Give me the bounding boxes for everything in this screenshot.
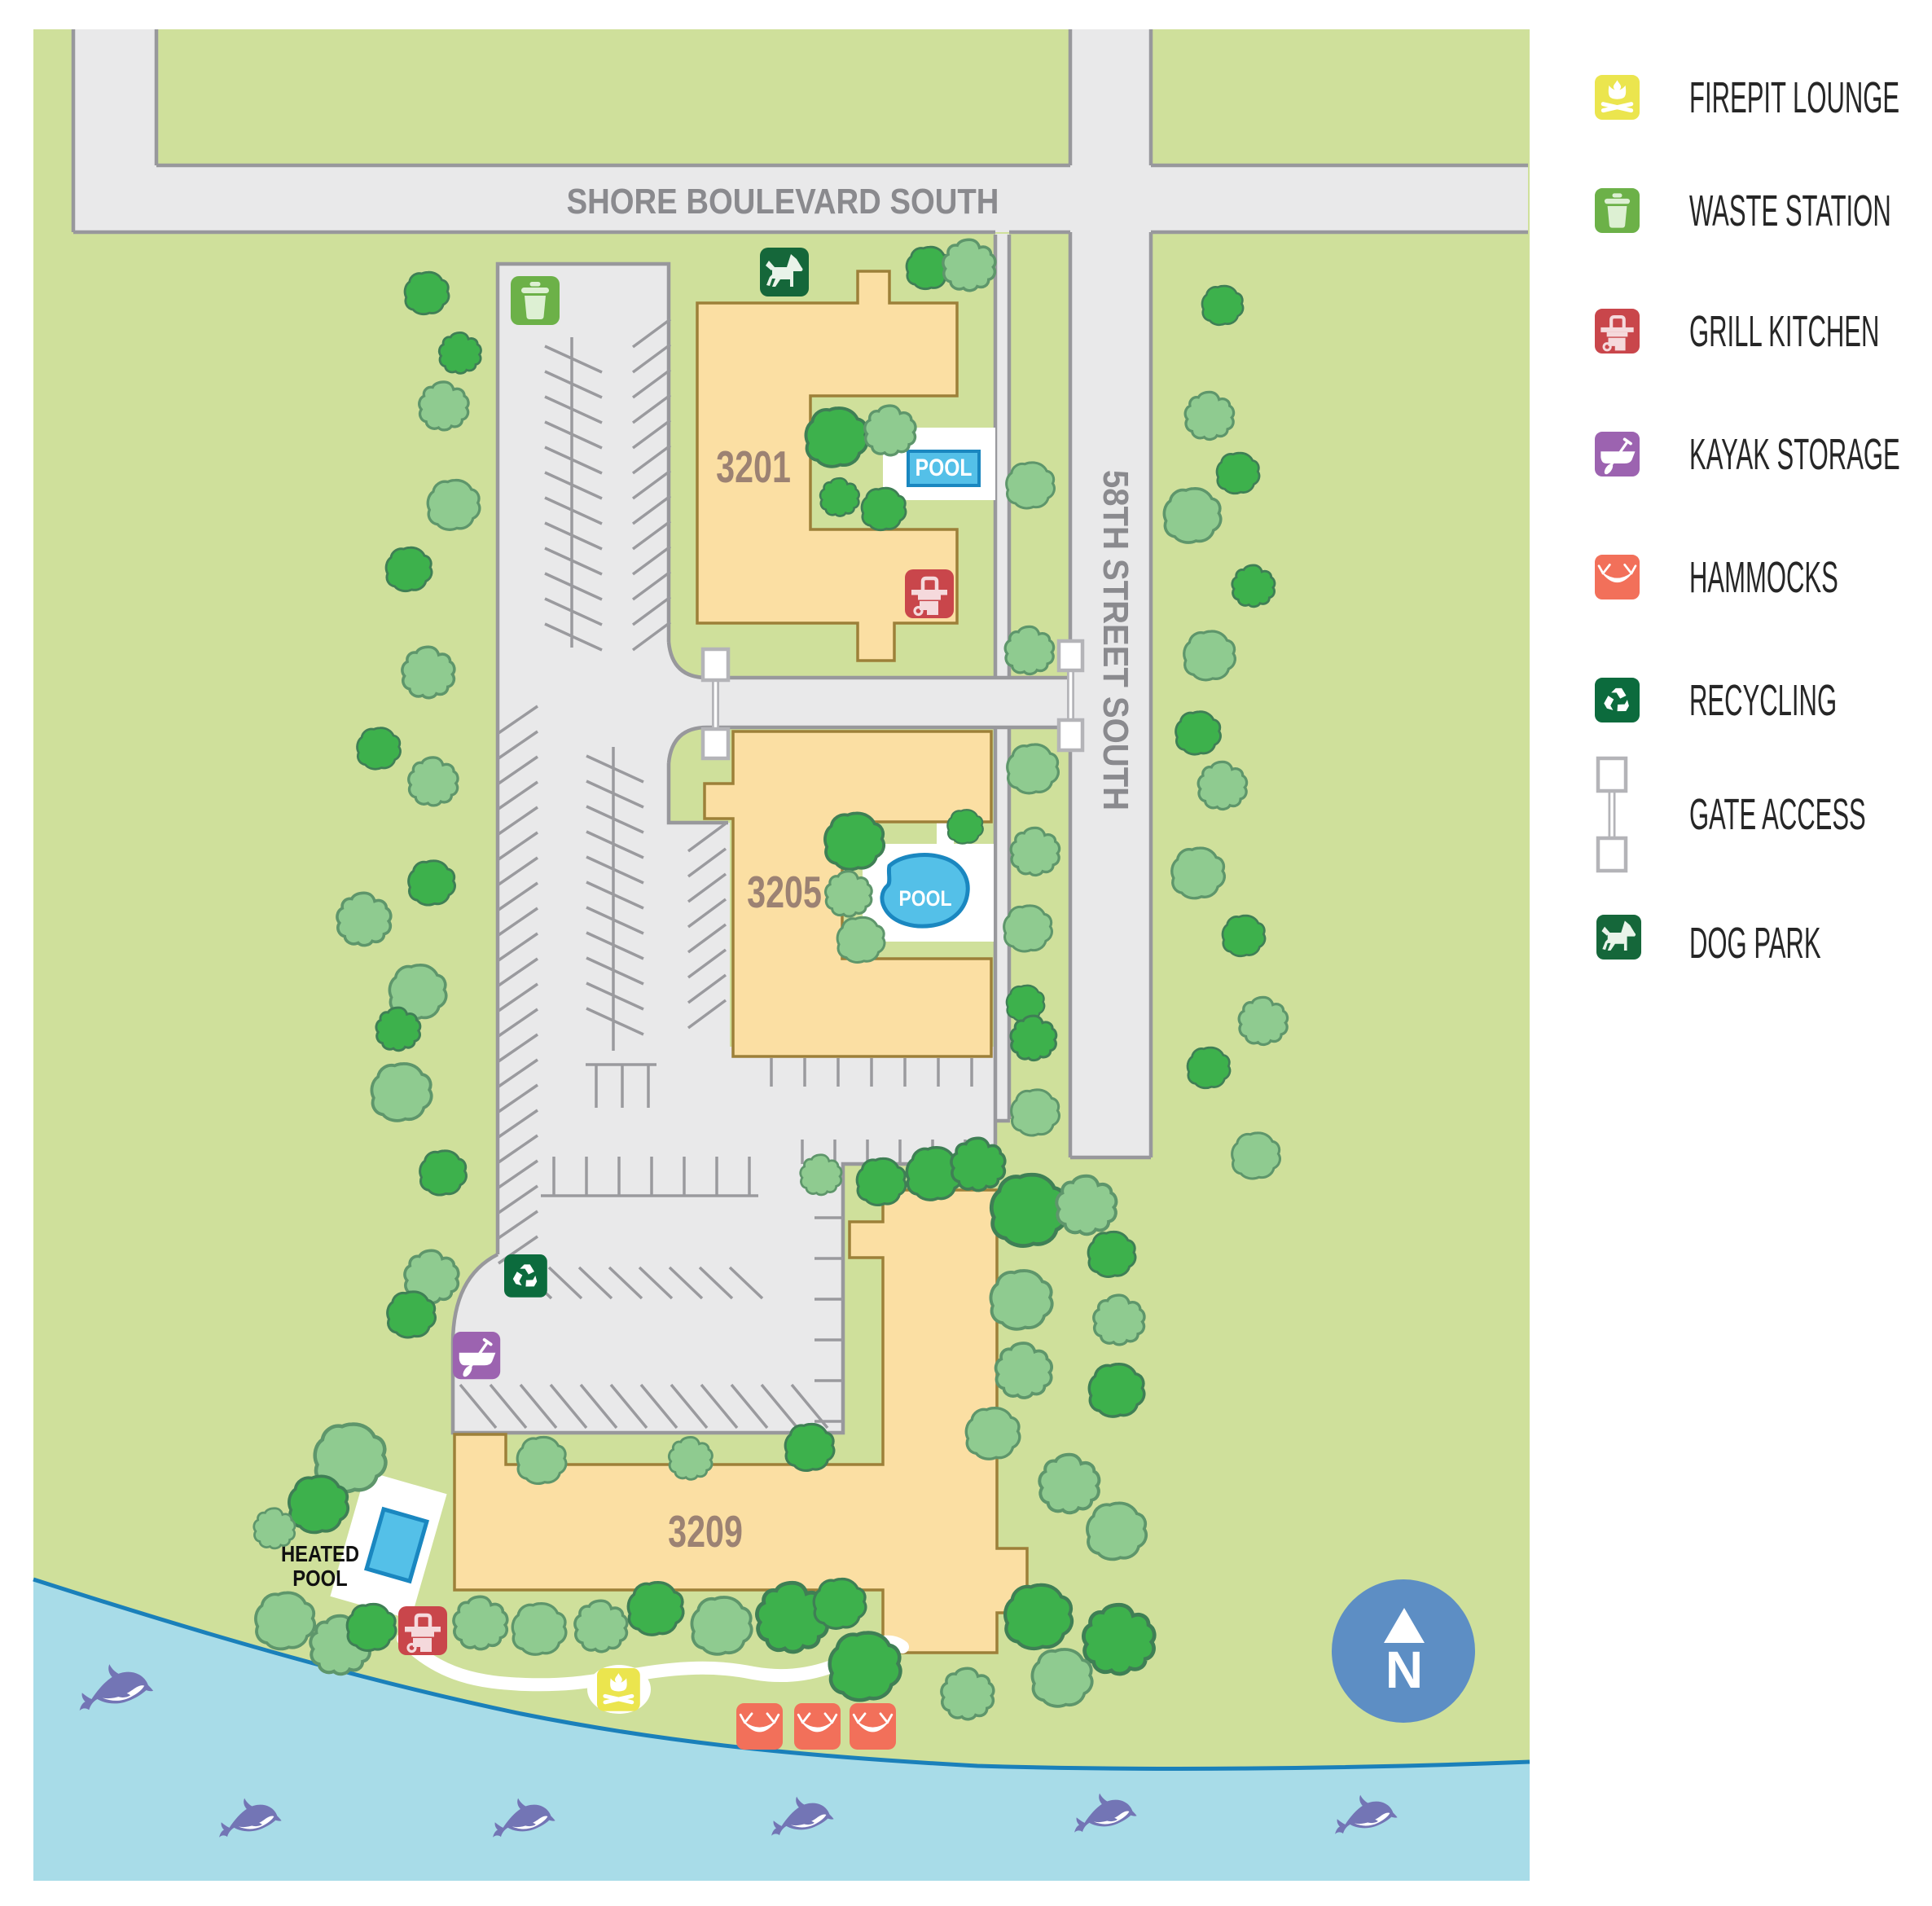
svg-text:3209: 3209 — [668, 1507, 743, 1557]
svg-text:KAYAK STORAGE: KAYAK STORAGE — [1689, 430, 1900, 479]
svg-text:HEATED: HEATED — [281, 1540, 359, 1566]
svg-text:DOG PARK: DOG PARK — [1689, 919, 1821, 968]
svg-text:GRILL KITCHEN: GRILL KITCHEN — [1689, 307, 1879, 356]
svg-text:WASTE STATION: WASTE STATION — [1689, 187, 1891, 235]
svg-text:POOL: POOL — [898, 886, 951, 911]
svg-text:3205: 3205 — [747, 867, 822, 917]
svg-text:POOL: POOL — [916, 454, 973, 481]
svg-text:SHORE BOULEVARD SOUTH: SHORE BOULEVARD SOUTH — [567, 182, 999, 222]
svg-text:RECYCLING: RECYCLING — [1689, 676, 1837, 725]
svg-text:POOL: POOL — [292, 1565, 348, 1591]
svg-text:HAMMOCKS: HAMMOCKS — [1689, 553, 1838, 602]
svg-text:GATE ACCESS: GATE ACCESS — [1689, 790, 1866, 839]
svg-text:3201: 3201 — [716, 442, 791, 492]
svg-text:58TH STREET SOUTH: 58TH STREET SOUTH — [1096, 470, 1136, 810]
svg-text:N: N — [1385, 1640, 1423, 1699]
svg-text:FIREPIT LOUNGE: FIREPIT LOUNGE — [1689, 73, 1899, 122]
